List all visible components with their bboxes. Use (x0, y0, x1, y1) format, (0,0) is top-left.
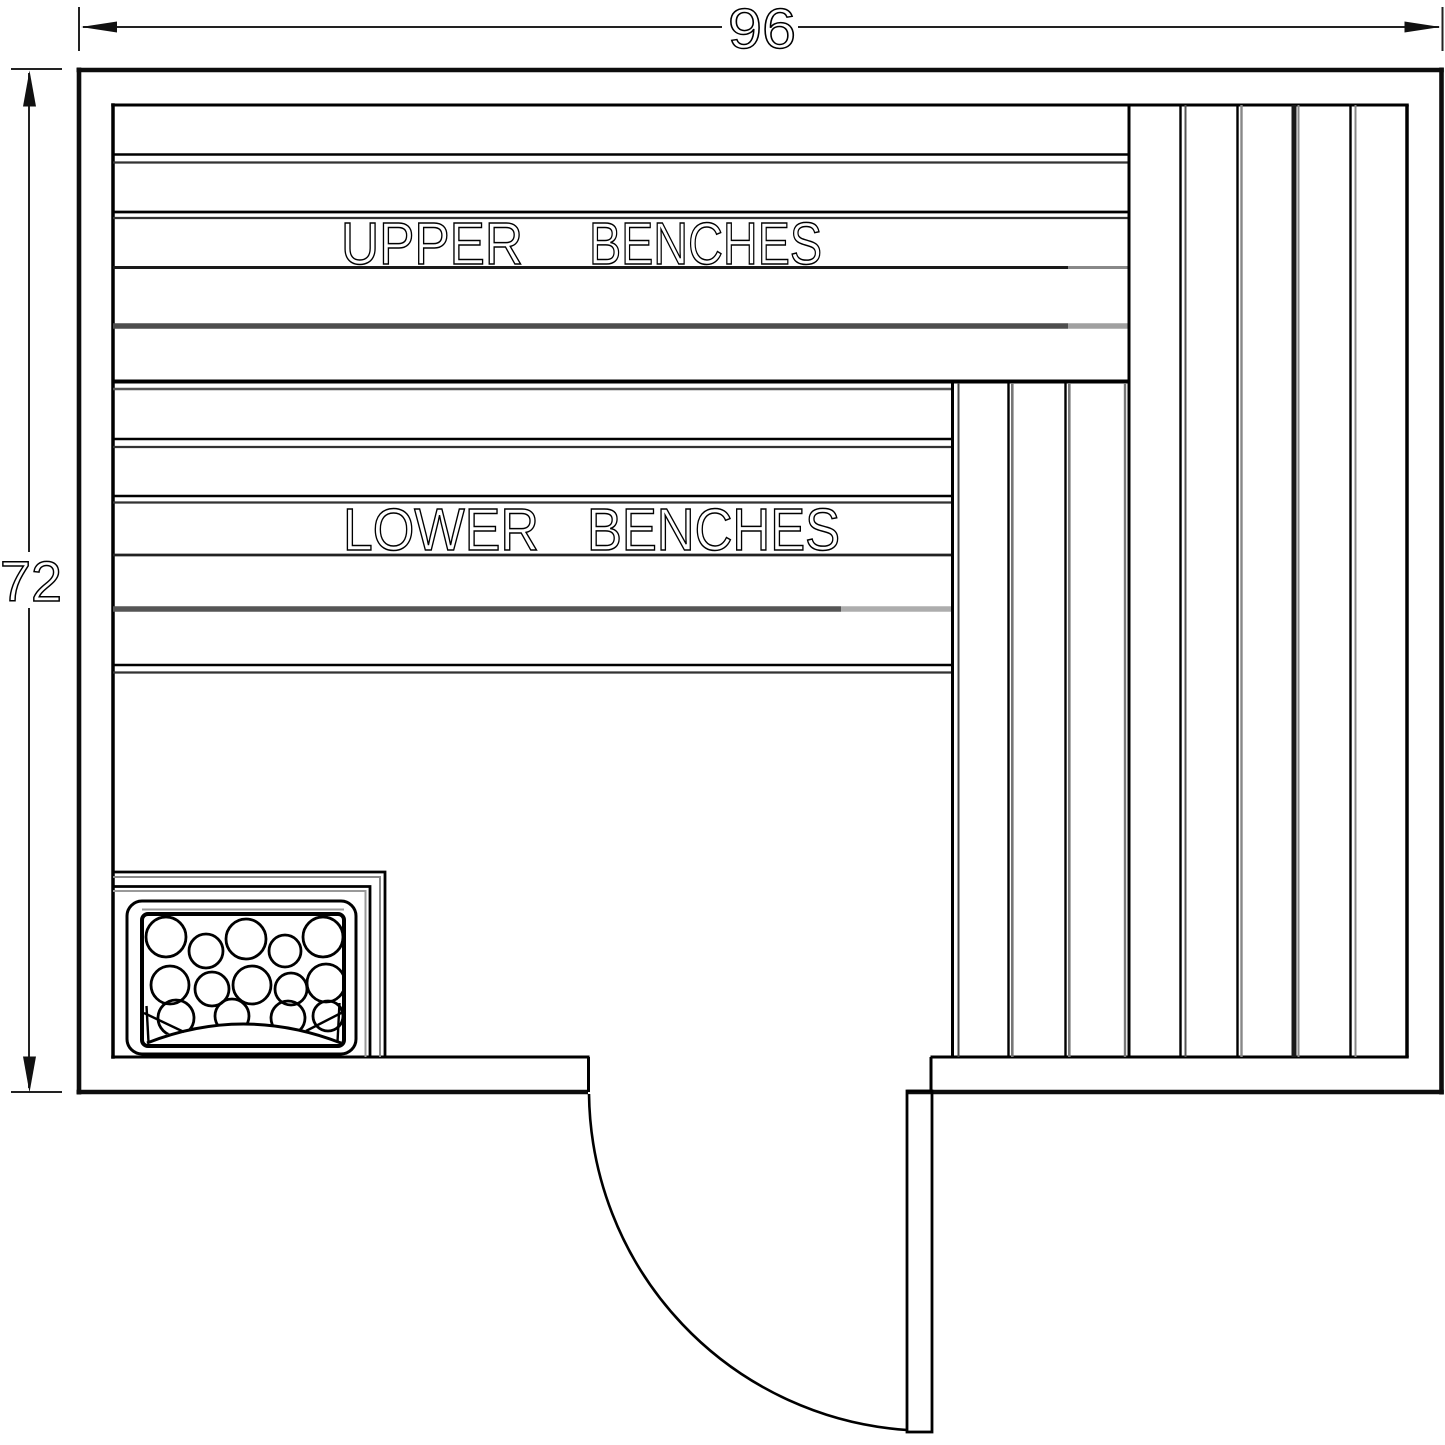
svg-text:96: 96 (728, 0, 796, 61)
svg-text:LOWER: LOWER (343, 497, 539, 563)
svg-text:UPPER: UPPER (341, 211, 523, 277)
svg-text:BENCHES: BENCHES (587, 497, 840, 563)
svg-text:72: 72 (0, 550, 62, 614)
svg-text:BENCHES: BENCHES (589, 211, 822, 277)
